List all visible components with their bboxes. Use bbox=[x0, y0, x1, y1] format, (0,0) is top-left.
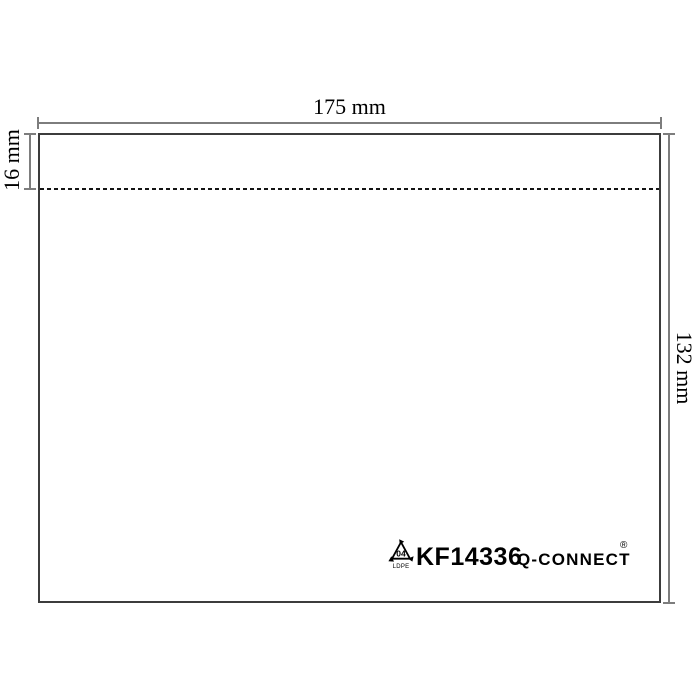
height-dimension-tick-top bbox=[663, 133, 675, 135]
brand-name: Q-CONNECT bbox=[517, 551, 631, 568]
resin-material-label: LDPE bbox=[393, 564, 410, 569]
height-dimension-label: 132 mm bbox=[673, 323, 695, 413]
flap-dimension-tick-top bbox=[24, 133, 36, 135]
recycling-ldpe-icon: 04 LDPE bbox=[388, 539, 414, 569]
width-dimension-tick-left bbox=[37, 117, 39, 129]
seal-flap-dashed-line bbox=[40, 188, 659, 190]
width-dimension-line bbox=[38, 122, 661, 124]
width-dimension-tick-right bbox=[660, 117, 662, 129]
product-code: KF14336 bbox=[416, 545, 522, 570]
height-dimension-line bbox=[668, 134, 670, 603]
dimension-drawing: 175 mm 16 mm 132 mm 04 LDPE KF14336 Q-CO… bbox=[0, 0, 700, 700]
flap-dimension-tick-bottom bbox=[24, 188, 36, 190]
height-dimension-tick-bottom bbox=[663, 602, 675, 604]
flap-dimension-line bbox=[29, 134, 31, 189]
flap-dimension-label: 16 mm bbox=[1, 115, 23, 205]
resin-code-number: 04 bbox=[396, 549, 406, 559]
width-dimension-label: 175 mm bbox=[38, 96, 661, 118]
registered-trademark-symbol: ® bbox=[620, 541, 627, 551]
envelope-outline bbox=[38, 133, 661, 603]
